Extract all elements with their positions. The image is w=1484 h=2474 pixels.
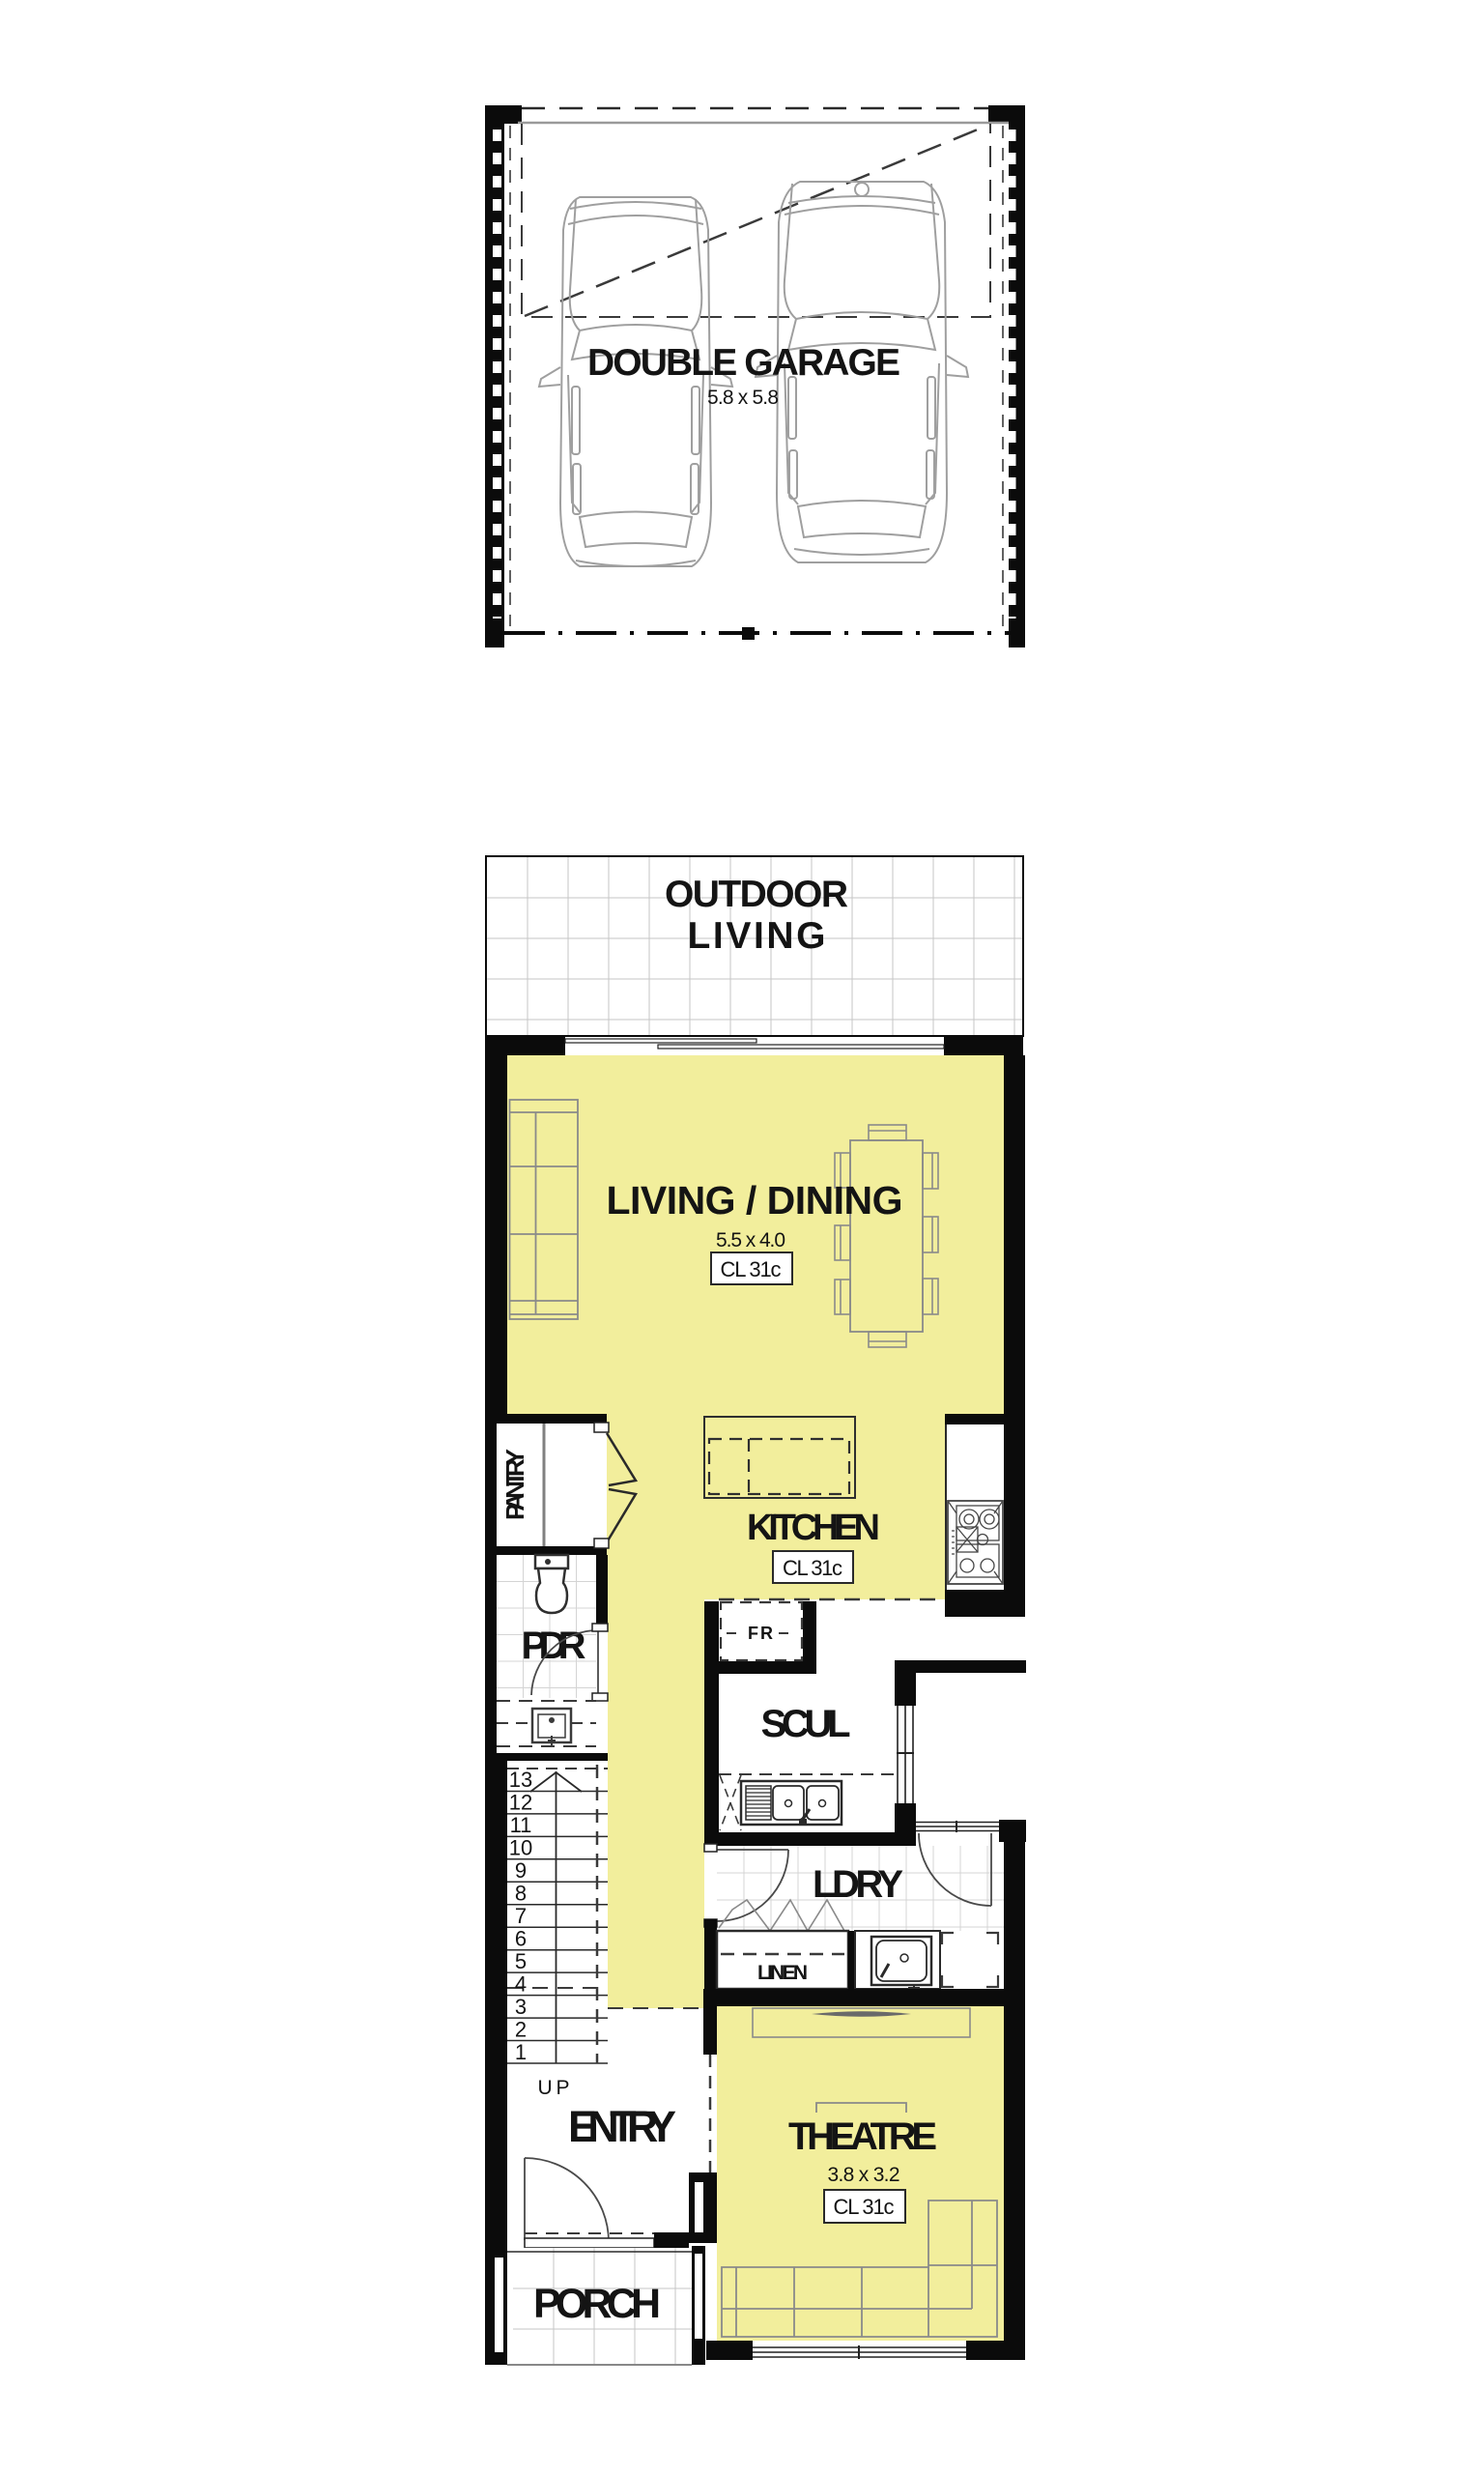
svg-text:THEATRE: THEATRE: [788, 2115, 937, 2158]
svg-text:8: 8: [515, 1882, 527, 1906]
svg-text:SCUL: SCUL: [761, 1703, 851, 1745]
svg-text:5.5 x 4.0: 5.5 x 4.0: [716, 1229, 785, 1251]
svg-text:PORCH: PORCH: [533, 2281, 661, 2327]
svg-text:10: 10: [509, 1836, 532, 1860]
svg-text:2: 2: [515, 2017, 527, 2041]
svg-text:FR: FR: [748, 1624, 773, 1643]
svg-text:LIVING: LIVING: [688, 915, 826, 957]
svg-text:ENTRY: ENTRY: [568, 2102, 676, 2151]
svg-text:13: 13: [509, 1768, 532, 1792]
svg-text:PANTRY: PANTRY: [500, 1449, 529, 1520]
svg-text:PDR: PDR: [522, 1625, 586, 1667]
svg-text:DOUBLE GARAGE: DOUBLE GARAGE: [587, 342, 900, 384]
svg-text:11: 11: [510, 1813, 532, 1837]
svg-text:CL 31c: CL 31c: [721, 1257, 782, 1281]
svg-text:4: 4: [515, 1971, 527, 1996]
svg-text:5.8 x 5.8: 5.8 x 5.8: [707, 387, 779, 409]
svg-text:OUTDOOR: OUTDOOR: [665, 874, 848, 915]
svg-text:LINEN: LINEN: [757, 1962, 808, 1984]
svg-text:KITCHEN: KITCHEN: [747, 1508, 880, 1548]
svg-text:5: 5: [515, 1949, 527, 1973]
svg-text:1: 1: [515, 2040, 527, 2064]
svg-text:LIVING / DINING: LIVING / DINING: [607, 1178, 903, 1223]
svg-text:3.8 x 3.2: 3.8 x 3.2: [828, 2164, 900, 2186]
svg-text:6: 6: [515, 1927, 527, 1951]
svg-text:LDRY: LDRY: [813, 1863, 903, 1906]
svg-text:3: 3: [515, 1995, 527, 2019]
svg-text:CL 31c: CL 31c: [783, 1556, 842, 1580]
svg-text:7: 7: [515, 1904, 527, 1928]
svg-text:12: 12: [509, 1791, 532, 1815]
svg-text:CL 31c: CL 31c: [834, 2195, 895, 2219]
svg-text:9: 9: [515, 1858, 527, 1883]
